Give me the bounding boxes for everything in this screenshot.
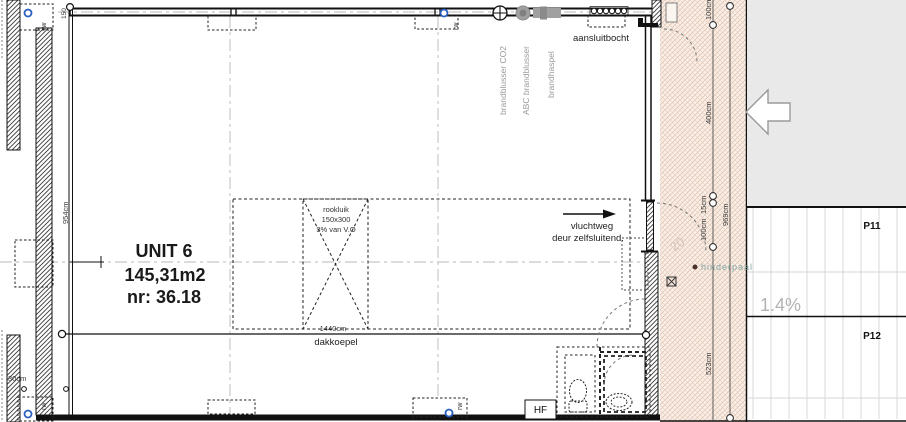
toilet-fixture-right (606, 394, 632, 411)
toilet-block: HF (525, 299, 650, 419)
dim-node-small (22, 387, 27, 392)
drain-label: rw (453, 22, 460, 30)
escape-label-2: deur zelfsluitend. (552, 233, 624, 244)
drain-icon (441, 10, 448, 17)
hose-reel-icon-hub (540, 7, 547, 20)
connection-bend-icon (597, 8, 602, 13)
fire-equipment: brandblusser CO2 ABC brandblusser brandh… (493, 6, 629, 115)
bollard-label: hinderpaal (701, 262, 753, 272)
connection-bend-icon (603, 8, 608, 13)
abc-extinguisher-label: ABC brandblusser (521, 46, 531, 115)
dim-node (727, 415, 734, 422)
drain-label: rw (41, 22, 48, 30)
slope-label: 1.4% (760, 295, 801, 315)
columns (15, 4, 625, 421)
dim-node (710, 200, 717, 207)
door-leader-box (622, 238, 648, 290)
dim-node (710, 22, 717, 29)
dim-road-lower: 523cm (704, 352, 713, 375)
dim-left-height: 954cm (61, 201, 70, 224)
exit-door-leaf (647, 202, 654, 250)
skylight-label: dakkoepel (314, 337, 357, 348)
connection-bend-icon (621, 8, 626, 13)
dim-road-step: 15cm (699, 196, 708, 214)
hf-label: HF (534, 405, 547, 416)
road-column (666, 3, 677, 22)
hose-reel-label: brandhaspel (546, 51, 556, 98)
dim-road-upper: 400cm (704, 101, 713, 124)
drain-icon (446, 410, 453, 417)
toilet-door-swing-inner (604, 355, 634, 385)
dim-node (727, 3, 734, 10)
parking-spot-p12-label: P12 (863, 331, 881, 342)
smoke-hatch-label-1: rookluik (323, 205, 349, 214)
smoke-hatch-label-3: 3% van V.O (316, 225, 355, 234)
dim-node (710, 244, 717, 251)
line-end-node (642, 331, 649, 338)
floor-plan-drawing: P11 P12 1.4% 100cm 400cm 15cm 100cm 523c… (0, 0, 906, 422)
connection-bend-icon (615, 8, 620, 13)
drain-label: rw (41, 402, 48, 410)
skylight-width-label: 1440cm (320, 324, 347, 333)
column-box (588, 16, 625, 27)
parking-spot-p11-label: P11 (863, 221, 881, 232)
toilet-fixture-left (570, 380, 587, 403)
toilet-door-swing-outer (597, 299, 645, 347)
column-box (208, 16, 256, 30)
dim-corner: 150 (61, 8, 68, 19)
line-end-node (58, 330, 65, 337)
bollard-dot (693, 265, 698, 270)
column-box (20, 4, 53, 30)
escape-arrow-head (603, 210, 616, 219)
dim-node-small (64, 387, 69, 392)
unit-area: 145,31m2 (124, 265, 205, 285)
column-box (415, 16, 458, 29)
right-wall-top-stub (652, 0, 661, 27)
co2-extinguisher-label: brandblusser CO2 (498, 46, 508, 115)
dim-wall-width: 30cm (8, 374, 26, 383)
escape-label-1: vluchtweg (571, 221, 613, 232)
connection-bend-label: aansluitbocht (573, 33, 629, 44)
abc-extinguisher-icon-core (520, 10, 527, 17)
connection-bend-icon (591, 8, 596, 13)
unit-number: nr: 36.18 (127, 287, 201, 307)
column-box (208, 400, 255, 414)
smoke-hatch-label-2: 150x300 (322, 215, 351, 224)
left-wall (36, 28, 52, 415)
unit-title: UNIT 6 145,31m2 nr: 36.18 (124, 241, 205, 307)
drain-icon (25, 411, 32, 418)
drain-icon (25, 10, 32, 17)
drain-label: rw (457, 402, 464, 410)
neighbor-wall-top (7, 0, 20, 150)
dim-road-total: 969cm (721, 203, 730, 226)
toilet-fixture-right-bowl (611, 397, 627, 407)
gray-area (746, 0, 906, 207)
connection-bend-icon (609, 8, 614, 13)
dim-node (710, 193, 717, 200)
unit-name: UNIT 6 (135, 241, 192, 261)
skylight-outline (233, 199, 630, 329)
dim-road-top: 100cm (704, 0, 713, 20)
drain-markers: rw rw rw rw (25, 10, 465, 418)
floor-plan: P11 P12 1.4% 100cm 400cm 15cm 100cm 523c… (0, 0, 906, 422)
toilet-cell-right (604, 356, 646, 412)
